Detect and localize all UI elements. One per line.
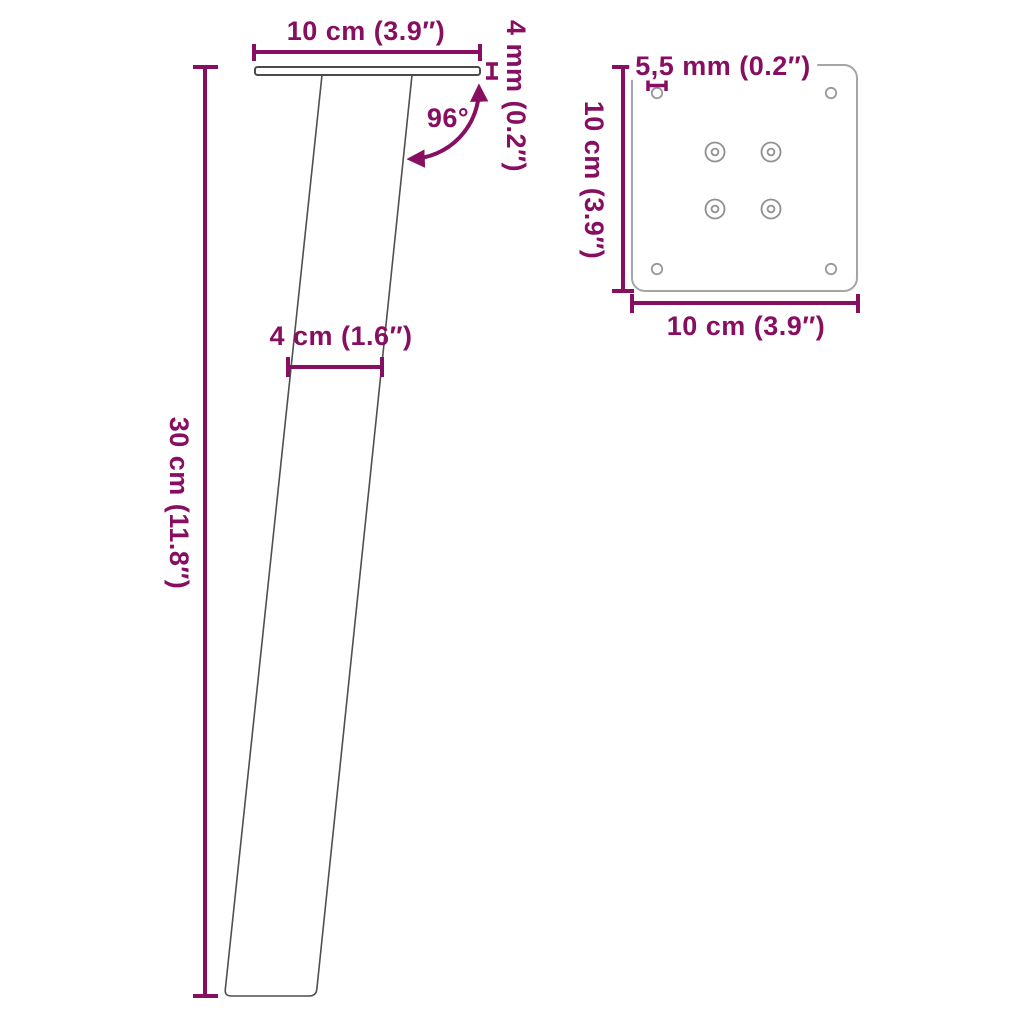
label-top-width: 10 cm (3.9″) (287, 17, 446, 45)
label-angle: 96° (427, 104, 469, 132)
corner-hole (826, 264, 836, 274)
mounting-plate-top-view (632, 65, 857, 291)
plate-side-profile (255, 67, 480, 75)
corner-hole (826, 88, 836, 98)
label-leg-width: 4 cm (1.6″) (270, 322, 413, 350)
label-plate-width: 10 cm (3.9″) (667, 312, 826, 340)
dimension-diagram: 10 cm (3.9″) 4 mm (0.2″) 96° 4 cm (1.6″)… (0, 0, 1024, 1024)
dimension-plate-thickness (486, 64, 498, 78)
label-hole-diameter: 5,5 mm (0.2″) (629, 52, 817, 80)
leg-outline (225, 75, 412, 996)
label-plate-height: 10 cm (3.9″) (580, 101, 608, 260)
label-plate-thickness: 4 mm (0.2″) (502, 20, 530, 172)
label-leg-height: 30 cm (11.8″) (165, 417, 193, 590)
dimension-plate-height (612, 67, 634, 291)
plate-outline (632, 65, 857, 291)
corner-hole (652, 88, 662, 98)
dimension-leg-height (193, 67, 218, 996)
corner-hole (652, 264, 662, 274)
dimension-top-width (254, 44, 480, 61)
